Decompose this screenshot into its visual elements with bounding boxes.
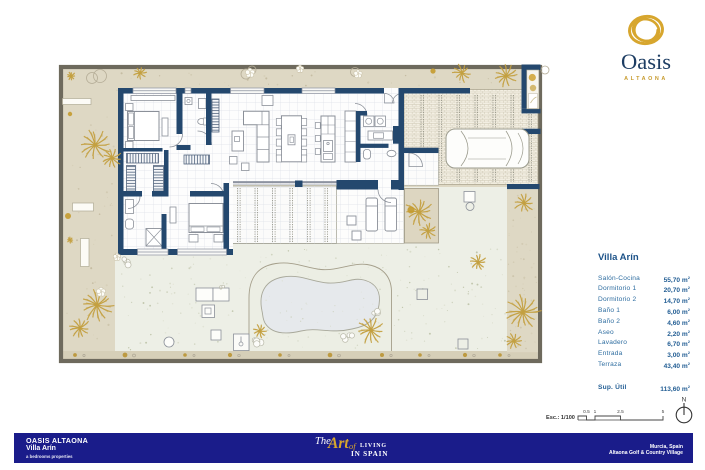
svg-text:N: N [682,397,687,404]
svg-text:1: 1 [594,409,597,415]
svg-text:ALTAONA: ALTAONA [624,76,668,82]
svg-text:0.5: 0.5 [583,409,590,415]
svg-text:2.5: 2.5 [617,409,624,415]
svg-text:Oasis: Oasis [621,49,671,74]
svg-text:5: 5 [662,409,665,415]
svg-text:Esc.: 1/100: Esc.: 1/100 [546,415,575,421]
